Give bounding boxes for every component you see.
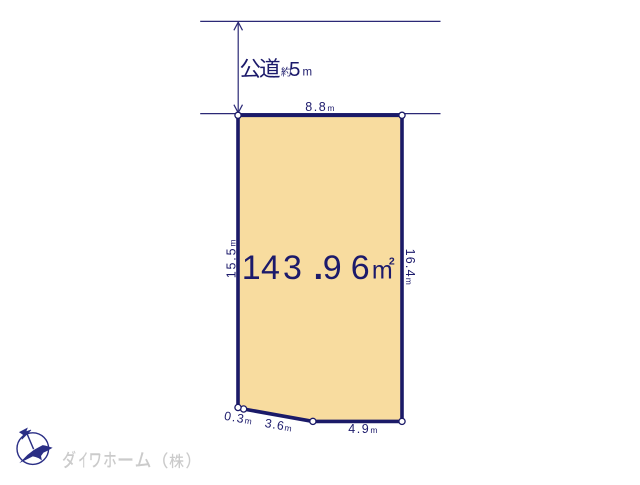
svg-text:8.8m: 8.8m xyxy=(305,100,334,114)
svg-text:15.5m: 15.5m xyxy=(224,240,238,279)
svg-text:2: 2 xyxy=(389,255,395,267)
svg-text:16.4m: 16.4m xyxy=(403,249,417,285)
svg-text:m: m xyxy=(303,67,313,79)
svg-text:5: 5 xyxy=(289,58,300,81)
svg-text:4.9m: 4.9m xyxy=(348,422,377,436)
